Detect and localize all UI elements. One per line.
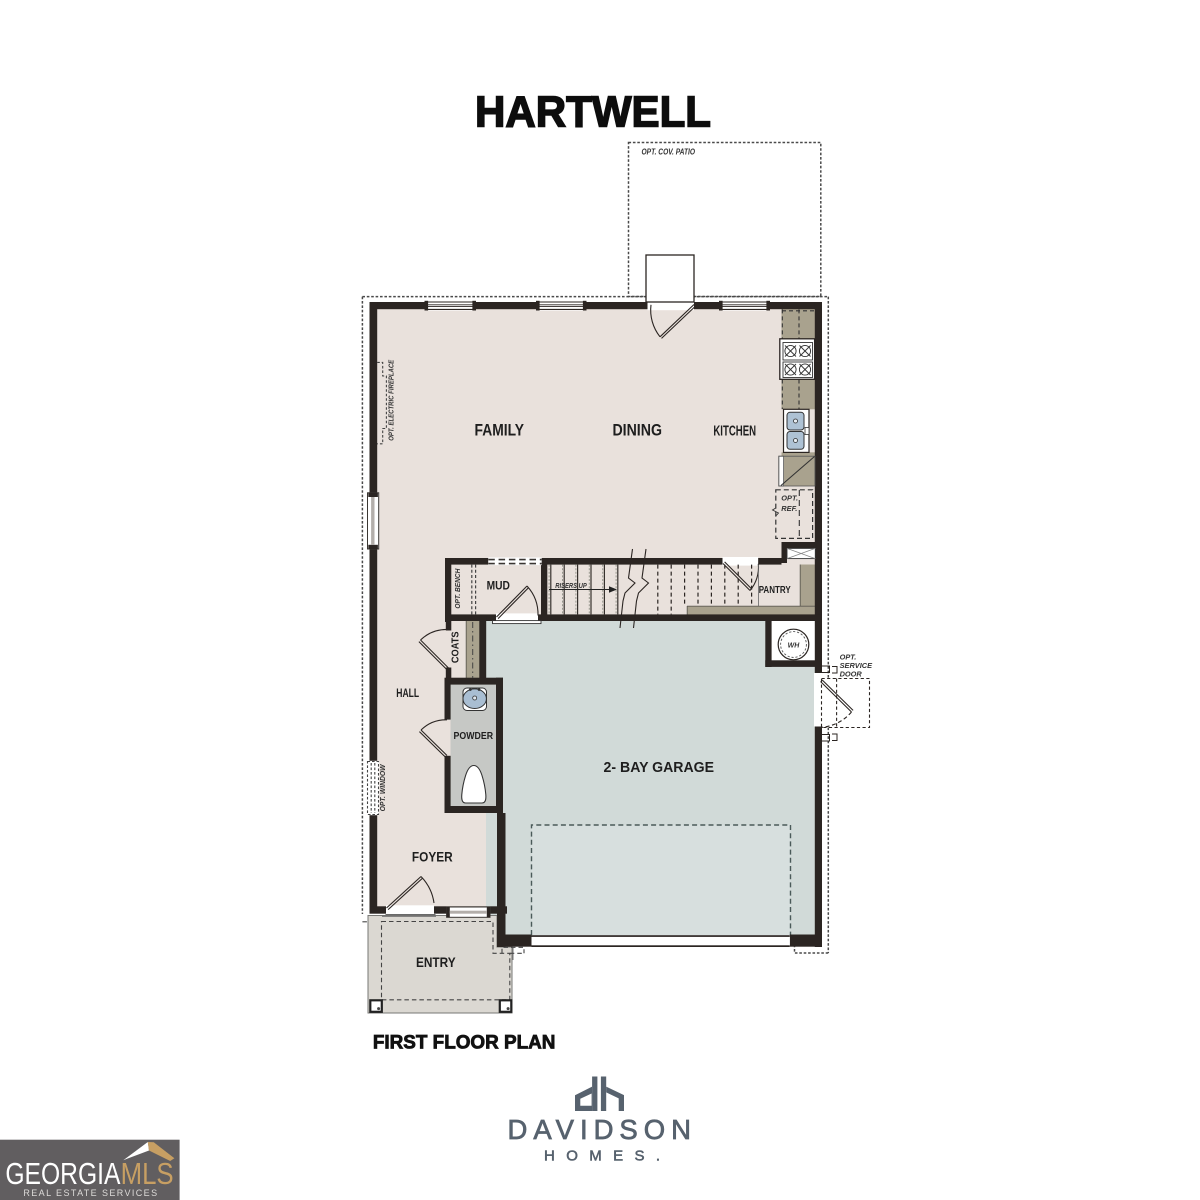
svg-text:HALL: HALL: [396, 686, 419, 700]
svg-text:WH: WH: [788, 643, 801, 650]
svg-text:MUD: MUD: [487, 579, 510, 593]
svg-text:COATS: COATS: [451, 631, 462, 663]
svg-text:POWDER: POWDER: [454, 731, 494, 742]
svg-text:OPT. ELECTRIC FIREPLACE: OPT. ELECTRIC FIREPLACE: [387, 359, 396, 441]
svg-text:OPT.: OPT.: [781, 494, 798, 503]
svg-text:DOOR: DOOR: [840, 670, 863, 679]
svg-text:OPT. WINDOW: OPT. WINDOW: [378, 764, 387, 812]
svg-text:MLS: MLS: [121, 1156, 174, 1191]
svg-text:FOYER: FOYER: [412, 849, 453, 864]
svg-text:FIRST FLOOR PLAN: FIRST FLOOR PLAN: [373, 1032, 556, 1053]
svg-text:HARTWELL: HARTWELL: [475, 89, 711, 137]
svg-text:DAVIDSON: DAVIDSON: [508, 1114, 692, 1145]
svg-text:DINING: DINING: [612, 420, 662, 439]
svg-text:OPT. COV. PATIO: OPT. COV. PATIO: [642, 147, 696, 157]
svg-text:ENTRY: ENTRY: [416, 955, 456, 970]
svg-text:RISERS UP: RISERS UP: [555, 581, 587, 590]
svg-text:HOMES.: HOMES.: [544, 1147, 660, 1164]
svg-text:OPT. BENCH: OPT. BENCH: [453, 568, 462, 609]
svg-text:REAL ESTATE SERVICES: REAL ESTATE SERVICES: [23, 1188, 157, 1198]
svg-text:GEORGIA: GEORGIA: [5, 1156, 120, 1191]
svg-text:REF.: REF.: [781, 504, 797, 513]
svg-text:KITCHEN: KITCHEN: [713, 423, 756, 439]
svg-text:2- BAY GARAGE: 2- BAY GARAGE: [604, 759, 715, 776]
svg-text:PANTRY: PANTRY: [759, 585, 791, 596]
svg-text:FAMILY: FAMILY: [475, 420, 525, 439]
